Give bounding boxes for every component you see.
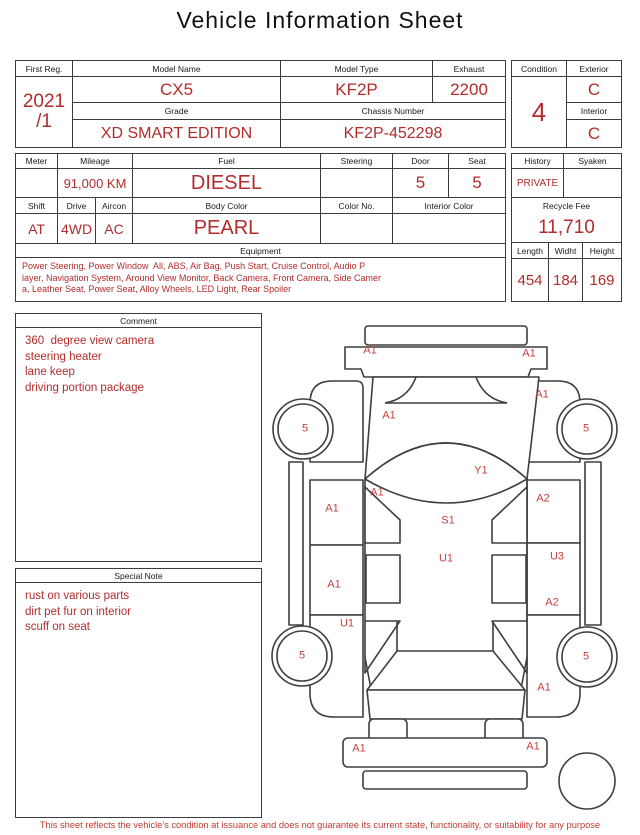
equipment-label: Equipment bbox=[16, 244, 505, 258]
first-reg-value: 2021 /1 bbox=[16, 77, 73, 147]
damage-marker-a1: A1 bbox=[522, 349, 535, 360]
drive-label: Drive bbox=[58, 198, 96, 214]
height-label: Height bbox=[583, 243, 621, 259]
drive-value: 4WD bbox=[58, 214, 96, 244]
damage-marker-5: 5 bbox=[302, 424, 308, 435]
damage-marker-a1: A1 bbox=[370, 488, 383, 499]
color-no-label: Color No. bbox=[321, 198, 393, 214]
recycle-fee-label: Recycle Fee bbox=[512, 198, 621, 214]
color-no-value bbox=[321, 214, 393, 244]
syaken-value bbox=[564, 169, 621, 198]
condition-table: Condition Exterior 4 C Interior C bbox=[511, 60, 622, 148]
exterior-label: Exterior bbox=[567, 61, 621, 77]
shift-value: AT bbox=[16, 214, 58, 244]
door-label: Door bbox=[393, 154, 449, 169]
width-value: 184 bbox=[549, 259, 583, 301]
aircon-value: AC bbox=[96, 214, 133, 244]
meter-value bbox=[16, 169, 58, 198]
body-color-label: Body Color bbox=[133, 198, 321, 214]
spec-table: Meter Mileage Fuel Steering Door Seat 91… bbox=[15, 153, 506, 302]
history-table: History Syaken PRIVATE Recycle Fee 11,71… bbox=[511, 153, 622, 302]
exhaust-label: Exhaust bbox=[433, 61, 505, 77]
damage-marker-u1: U1 bbox=[439, 554, 453, 565]
chassis-number-value: KF2P-452298 bbox=[281, 120, 505, 147]
interior-value: C bbox=[567, 120, 621, 147]
comment-text: 360 degree view camera steering heater l… bbox=[16, 328, 261, 402]
damage-marker-5: 5 bbox=[299, 651, 305, 662]
interior-label: Interior bbox=[567, 103, 621, 120]
steering-label: Steering bbox=[321, 154, 393, 169]
damage-marker-a1: A1 bbox=[327, 580, 340, 591]
condition-value: 4 bbox=[512, 77, 567, 147]
special-note-box: Special Note rust on various parts dirt … bbox=[15, 568, 262, 818]
grade-label: Grade bbox=[73, 103, 281, 120]
history-value: PRIVATE bbox=[512, 169, 564, 198]
interior-color-label: Interior Color bbox=[393, 198, 505, 214]
damage-marker-a1: A1 bbox=[382, 411, 395, 422]
history-label: History bbox=[512, 154, 564, 169]
model-type-value: KF2P bbox=[281, 77, 433, 103]
dimension-values: 454 184 169 bbox=[512, 259, 621, 301]
damage-marker-a1: A1 bbox=[363, 346, 376, 357]
exhaust-value: 2200 bbox=[433, 77, 505, 103]
syaken-label: Syaken bbox=[564, 154, 621, 169]
body-color-value: PEARL bbox=[133, 214, 321, 244]
seat-value: 5 bbox=[449, 169, 505, 198]
comment-box: Comment 360 degree view camera steering … bbox=[15, 313, 262, 562]
damage-marker-a1: A1 bbox=[526, 742, 539, 753]
width-label: Widht bbox=[549, 243, 583, 259]
damage-marker-y1: Y1 bbox=[474, 466, 487, 477]
fuel-value: DIESEL bbox=[133, 169, 321, 198]
recycle-fee-value: 11,710 bbox=[512, 214, 621, 243]
damage-marker-s1: S1 bbox=[441, 516, 454, 527]
equipment-value: Power Steering, Power Window All, ABS, A… bbox=[16, 258, 505, 301]
grade-value: XD SMART EDITION bbox=[73, 120, 281, 147]
car-outline-graphic bbox=[270, 315, 640, 815]
fuel-label: Fuel bbox=[133, 154, 321, 169]
damage-marker-a2: A2 bbox=[545, 598, 558, 609]
vehicle-id-table: First Reg. Model Name Model Type Exhaust… bbox=[15, 60, 506, 148]
comment-label: Comment bbox=[16, 314, 261, 328]
first-reg-label: First Reg. bbox=[16, 61, 73, 77]
damage-diagram: A1A1A155A1Y1A1A2A1S1U1U3A1A2U155A1A1A1 bbox=[270, 315, 640, 815]
model-name-value: CX5 bbox=[73, 77, 281, 103]
damage-marker-5: 5 bbox=[583, 652, 589, 663]
damage-marker-a1: A1 bbox=[537, 683, 550, 694]
mileage-label: Mileage bbox=[58, 154, 133, 169]
page-title: Vehicle Information Sheet bbox=[0, 7, 640, 34]
length-label: Length bbox=[512, 243, 549, 259]
damage-marker-u1: U1 bbox=[340, 619, 354, 630]
vehicle-information-sheet: Vehicle Information Sheet First Reg. Mod… bbox=[0, 0, 640, 835]
length-value: 454 bbox=[512, 259, 549, 301]
steering-value bbox=[321, 169, 393, 198]
mileage-value: 91,000 KM bbox=[58, 169, 133, 198]
model-type-label: Model Type bbox=[281, 61, 433, 77]
meter-label: Meter bbox=[16, 154, 58, 169]
footer-disclaimer: This sheet reflects the vehicle's condit… bbox=[0, 820, 640, 830]
damage-marker-u3: U3 bbox=[550, 552, 564, 563]
shift-label: Shift bbox=[16, 198, 58, 214]
chassis-number-label: Chassis Number bbox=[281, 103, 505, 120]
model-name-label: Model Name bbox=[73, 61, 281, 77]
damage-marker-a2: A2 bbox=[536, 494, 549, 505]
damage-marker-5: 5 bbox=[583, 424, 589, 435]
damage-marker-a1: A1 bbox=[352, 744, 365, 755]
door-value: 5 bbox=[393, 169, 449, 198]
aircon-label: Aircon bbox=[96, 198, 133, 214]
special-note-label: Special Note bbox=[16, 569, 261, 583]
height-value: 169 bbox=[583, 259, 621, 301]
damage-marker-a1: A1 bbox=[535, 390, 548, 401]
condition-label: Condition bbox=[512, 61, 567, 77]
interior-color-value bbox=[393, 214, 505, 244]
damage-marker-a1: A1 bbox=[325, 504, 338, 515]
special-note-text: rust on various parts dirt pet fur on in… bbox=[16, 583, 261, 642]
dimension-labels: Length Widht Height bbox=[512, 243, 621, 259]
seat-label: Seat bbox=[449, 154, 505, 169]
exterior-value: C bbox=[567, 77, 621, 103]
